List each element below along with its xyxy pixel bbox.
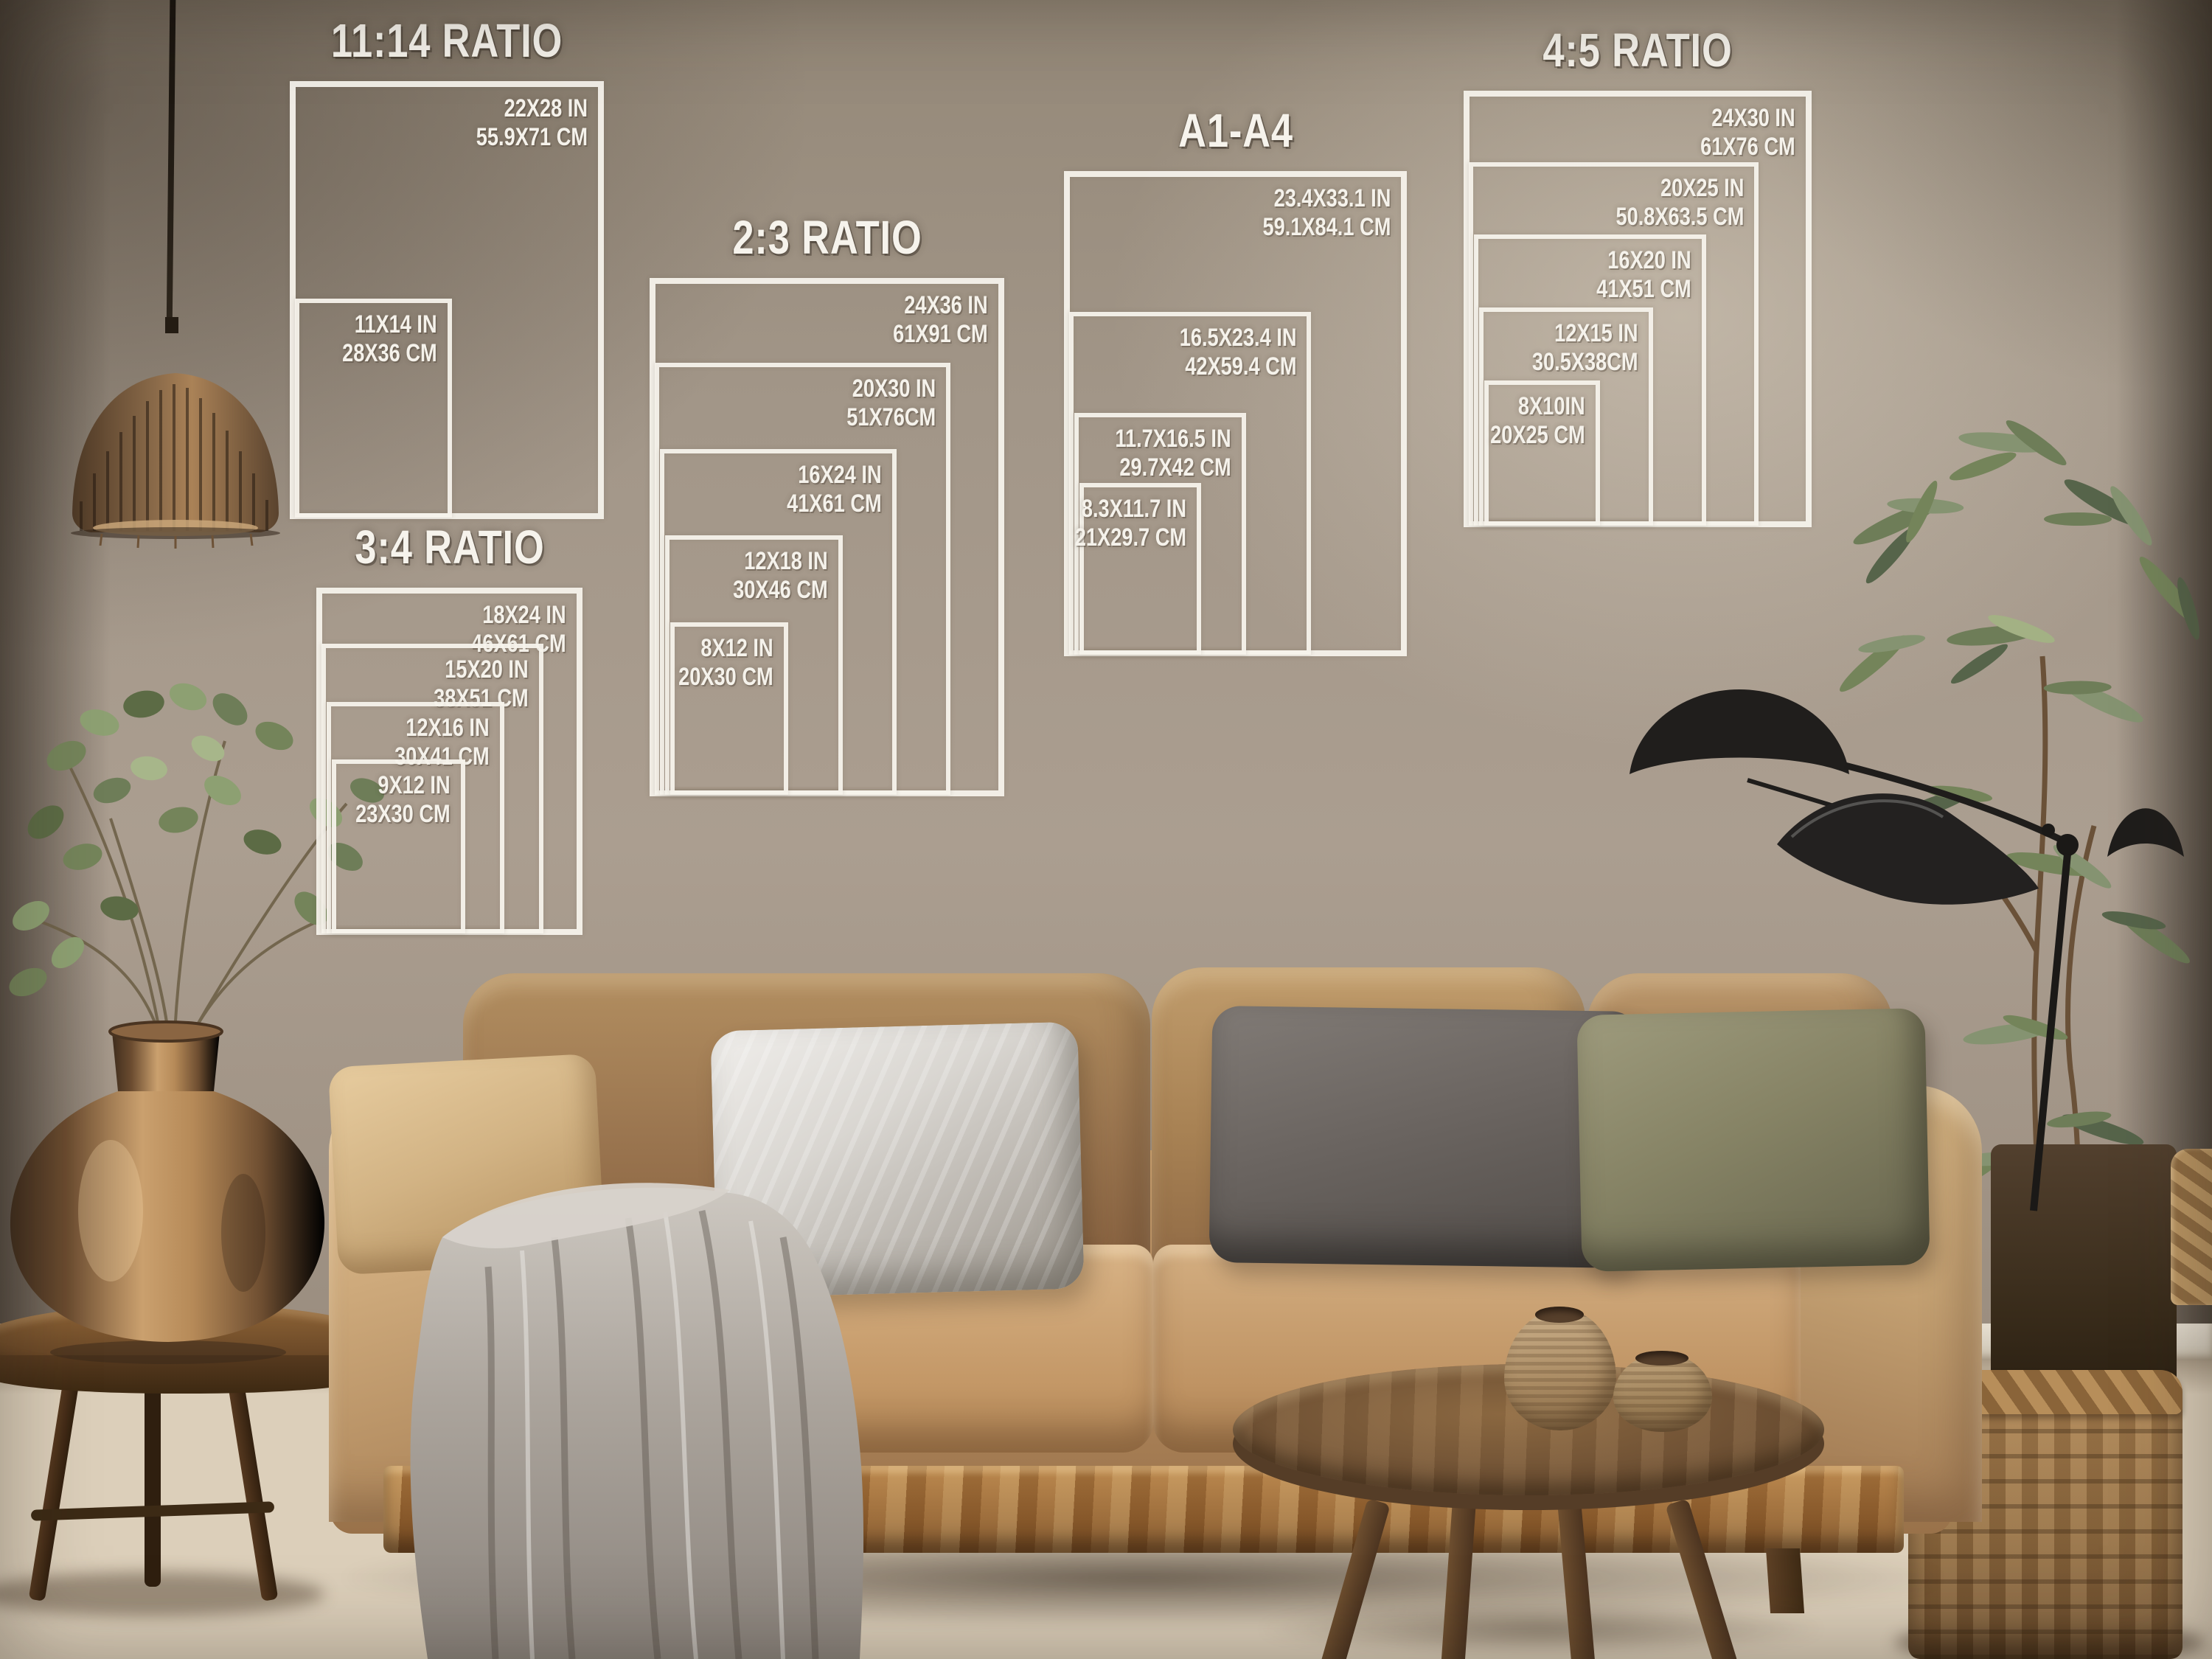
vase-opening [1535,1307,1584,1323]
sofa [0,0,2212,1659]
dark-gray-pillow [1209,1006,1641,1268]
throw-blanket-icon [383,1147,900,1659]
bowl-opening [1635,1351,1688,1366]
olive-pillow [1576,1008,1930,1272]
living-room-poster-size-guide: 11:14 RATIO22X28 IN55.9X71 CM11X14 IN28X… [0,0,2212,1659]
sofa-leg [1766,1548,1804,1613]
